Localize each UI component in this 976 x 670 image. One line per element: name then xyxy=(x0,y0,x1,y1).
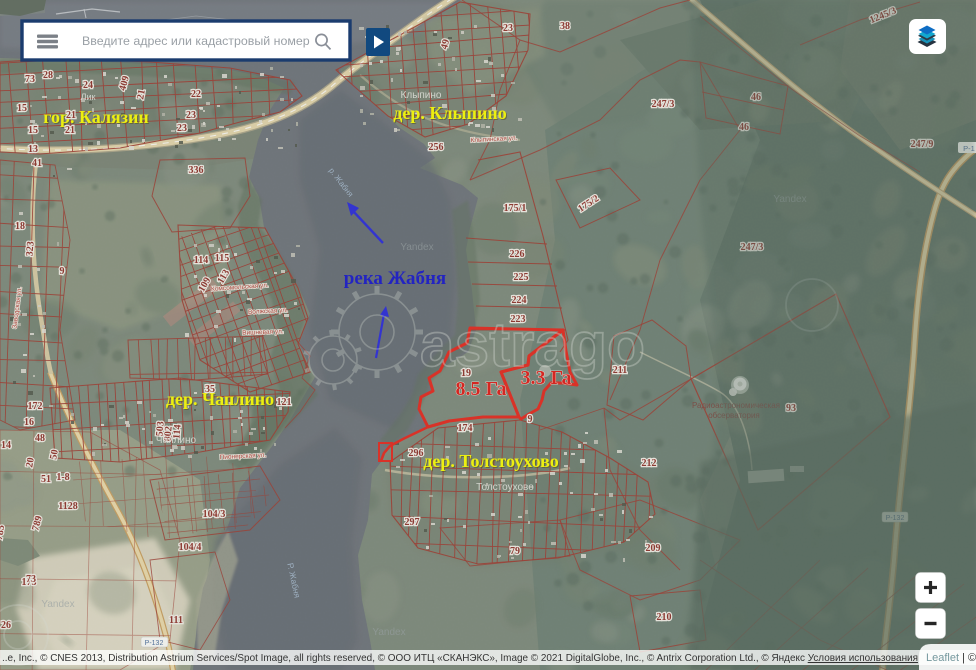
svg-text:Введите адрес или кадастровый: Введите адрес или кадастровый номер xyxy=(82,34,310,48)
svg-text:..е, Inc., © CNES 2013, Distri: ..е, Inc., © CNES 2013, Distribution Ast… xyxy=(2,652,918,664)
svg-text:Leaflet | ©: Leaflet | © xyxy=(926,652,976,664)
